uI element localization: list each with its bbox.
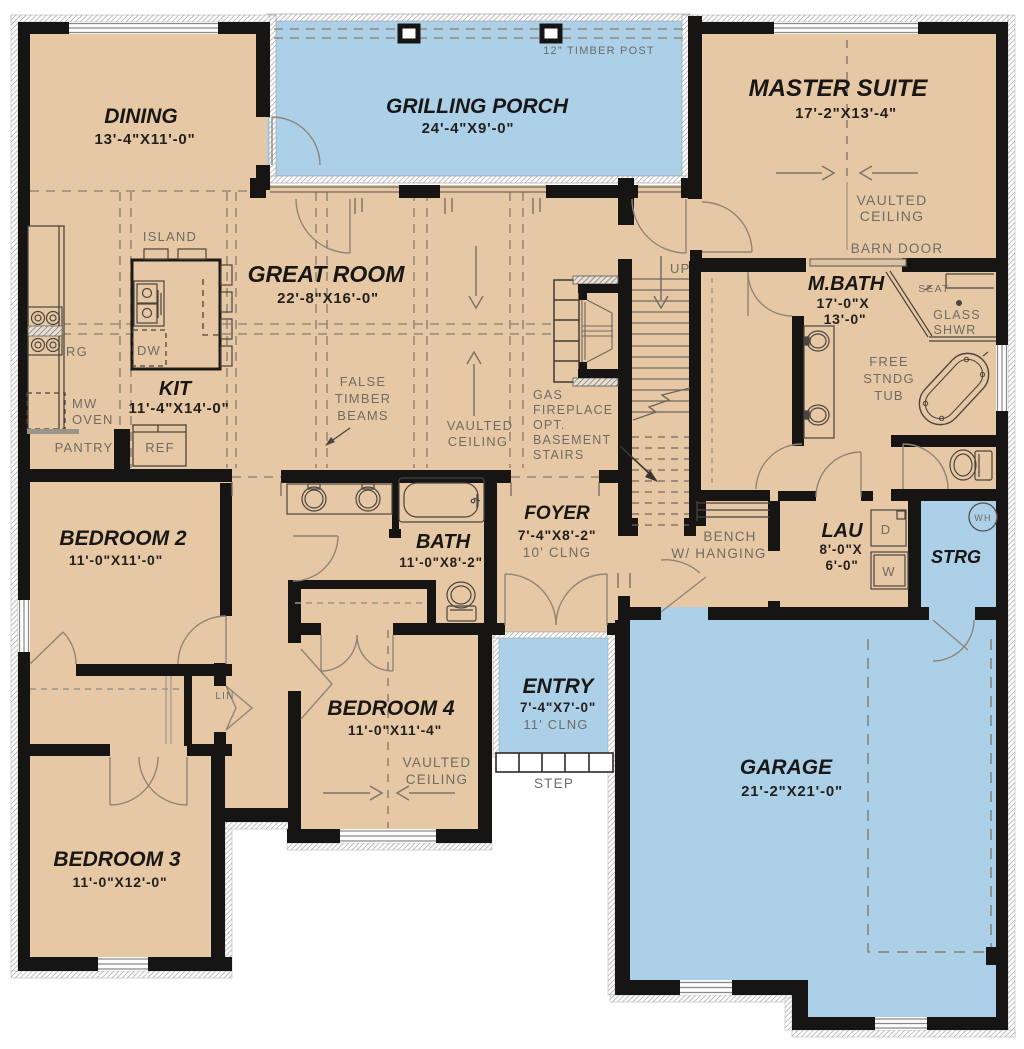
svg-text:VAULTED: VAULTED: [447, 418, 513, 433]
svg-text:11'-0"X11'-4": 11'-0"X11'-4": [348, 722, 442, 738]
svg-text:21'-2"X21'-0": 21'-2"X21'-0": [741, 783, 843, 800]
svg-text:10' CLNG: 10' CLNG: [523, 545, 591, 560]
svg-text:7'-4"X8'-2": 7'-4"X8'-2": [518, 527, 597, 543]
svg-text:17'-2"X13'-4": 17'-2"X13'-4": [795, 105, 897, 122]
svg-text:11'-4"X14'-0": 11'-4"X14'-0": [129, 400, 230, 417]
svg-text:KIT: KIT: [159, 378, 193, 400]
svg-text:STNDG: STNDG: [863, 371, 915, 386]
svg-text:RG: RG: [66, 344, 88, 359]
svg-text:BARN DOOR: BARN DOOR: [851, 241, 944, 256]
svg-text:8'-0"X: 8'-0"X: [820, 542, 863, 557]
svg-text:BEDROOM 2: BEDROOM 2: [59, 527, 187, 550]
svg-text:FIREPLACE: FIREPLACE: [533, 403, 613, 417]
svg-text:BEDROOM 4: BEDROOM 4: [327, 697, 455, 720]
svg-text:GAS: GAS: [533, 388, 563, 402]
svg-text:STRG: STRG: [931, 547, 981, 567]
svg-text:UP: UP: [670, 261, 690, 276]
svg-text:FOYER: FOYER: [524, 503, 590, 524]
svg-text:MW: MW: [72, 396, 98, 411]
svg-text:GLASS: GLASS: [933, 308, 981, 322]
svg-text:LIN: LIN: [215, 691, 234, 702]
svg-text:ENTRY: ENTRY: [523, 675, 596, 698]
svg-text:13'-4"X11'-0": 13'-4"X11'-0": [95, 131, 196, 148]
svg-text:13'-0": 13'-0": [824, 311, 867, 327]
svg-text:BEAMS: BEAMS: [337, 408, 389, 423]
svg-text:VAULTED: VAULTED: [857, 192, 928, 208]
svg-text:ISLAND: ISLAND: [143, 229, 197, 244]
svg-text:OVEN: OVEN: [72, 412, 114, 427]
svg-text:17'-0"X: 17'-0"X: [817, 295, 870, 311]
svg-text:BENCH: BENCH: [703, 529, 756, 544]
svg-text:11' CLNG: 11' CLNG: [523, 717, 588, 732]
svg-text:MASTER SUITE: MASTER SUITE: [749, 75, 929, 102]
svg-text:W: W: [882, 564, 895, 579]
svg-text:SEAT: SEAT: [918, 283, 949, 295]
svg-text:DINING: DINING: [104, 105, 178, 128]
svg-text:WH: WH: [974, 513, 991, 523]
svg-text:SHWR: SHWR: [934, 323, 977, 337]
svg-text:PANTRY: PANTRY: [55, 440, 114, 455]
svg-text:VAULTED: VAULTED: [403, 755, 472, 770]
svg-text:REF: REF: [145, 440, 175, 455]
svg-text:CEILING: CEILING: [406, 772, 468, 787]
svg-text:DW: DW: [137, 343, 161, 358]
svg-text:7'-4"X7'-0": 7'-4"X7'-0": [520, 700, 596, 715]
svg-text:OPT.: OPT.: [533, 418, 566, 432]
svg-text:6'-0": 6'-0": [825, 558, 858, 573]
svg-text:11'-0"X8'-2": 11'-0"X8'-2": [399, 555, 483, 570]
svg-text:M.BATH: M.BATH: [808, 273, 885, 295]
svg-text:BASEMENT: BASEMENT: [533, 433, 611, 447]
svg-text:STEP: STEP: [534, 776, 574, 791]
svg-text:TIMBER: TIMBER: [335, 391, 391, 406]
svg-text:GREAT ROOM: GREAT ROOM: [248, 261, 406, 287]
svg-text:FALSE: FALSE: [340, 374, 386, 389]
svg-text:11'-0"X12'-0": 11'-0"X12'-0": [73, 874, 168, 890]
svg-text:D: D: [881, 522, 892, 537]
svg-text:CEILING: CEILING: [860, 208, 924, 224]
svg-text:BATH: BATH: [416, 531, 471, 553]
svg-text:11'-0"X11'-0": 11'-0"X11'-0": [69, 552, 163, 568]
svg-text:STAIRS: STAIRS: [533, 448, 584, 462]
svg-text:FREE: FREE: [869, 354, 908, 369]
svg-text:W/ HANGING: W/ HANGING: [671, 546, 766, 561]
svg-text:GRILLING PORCH: GRILLING PORCH: [386, 95, 569, 118]
svg-text:TUB: TUB: [874, 388, 904, 403]
svg-text:22'-8"X16'-0": 22'-8"X16'-0": [277, 290, 379, 307]
svg-text:CEILING: CEILING: [448, 434, 508, 449]
svg-text:24'-4"X9'-0": 24'-4"X9'-0": [422, 120, 515, 137]
svg-text:GARAGE: GARAGE: [740, 756, 833, 779]
svg-text:LAU: LAU: [821, 520, 863, 542]
svg-text:BEDROOM 3: BEDROOM 3: [53, 848, 181, 871]
svg-text:12" TIMBER POST: 12" TIMBER POST: [543, 45, 655, 57]
